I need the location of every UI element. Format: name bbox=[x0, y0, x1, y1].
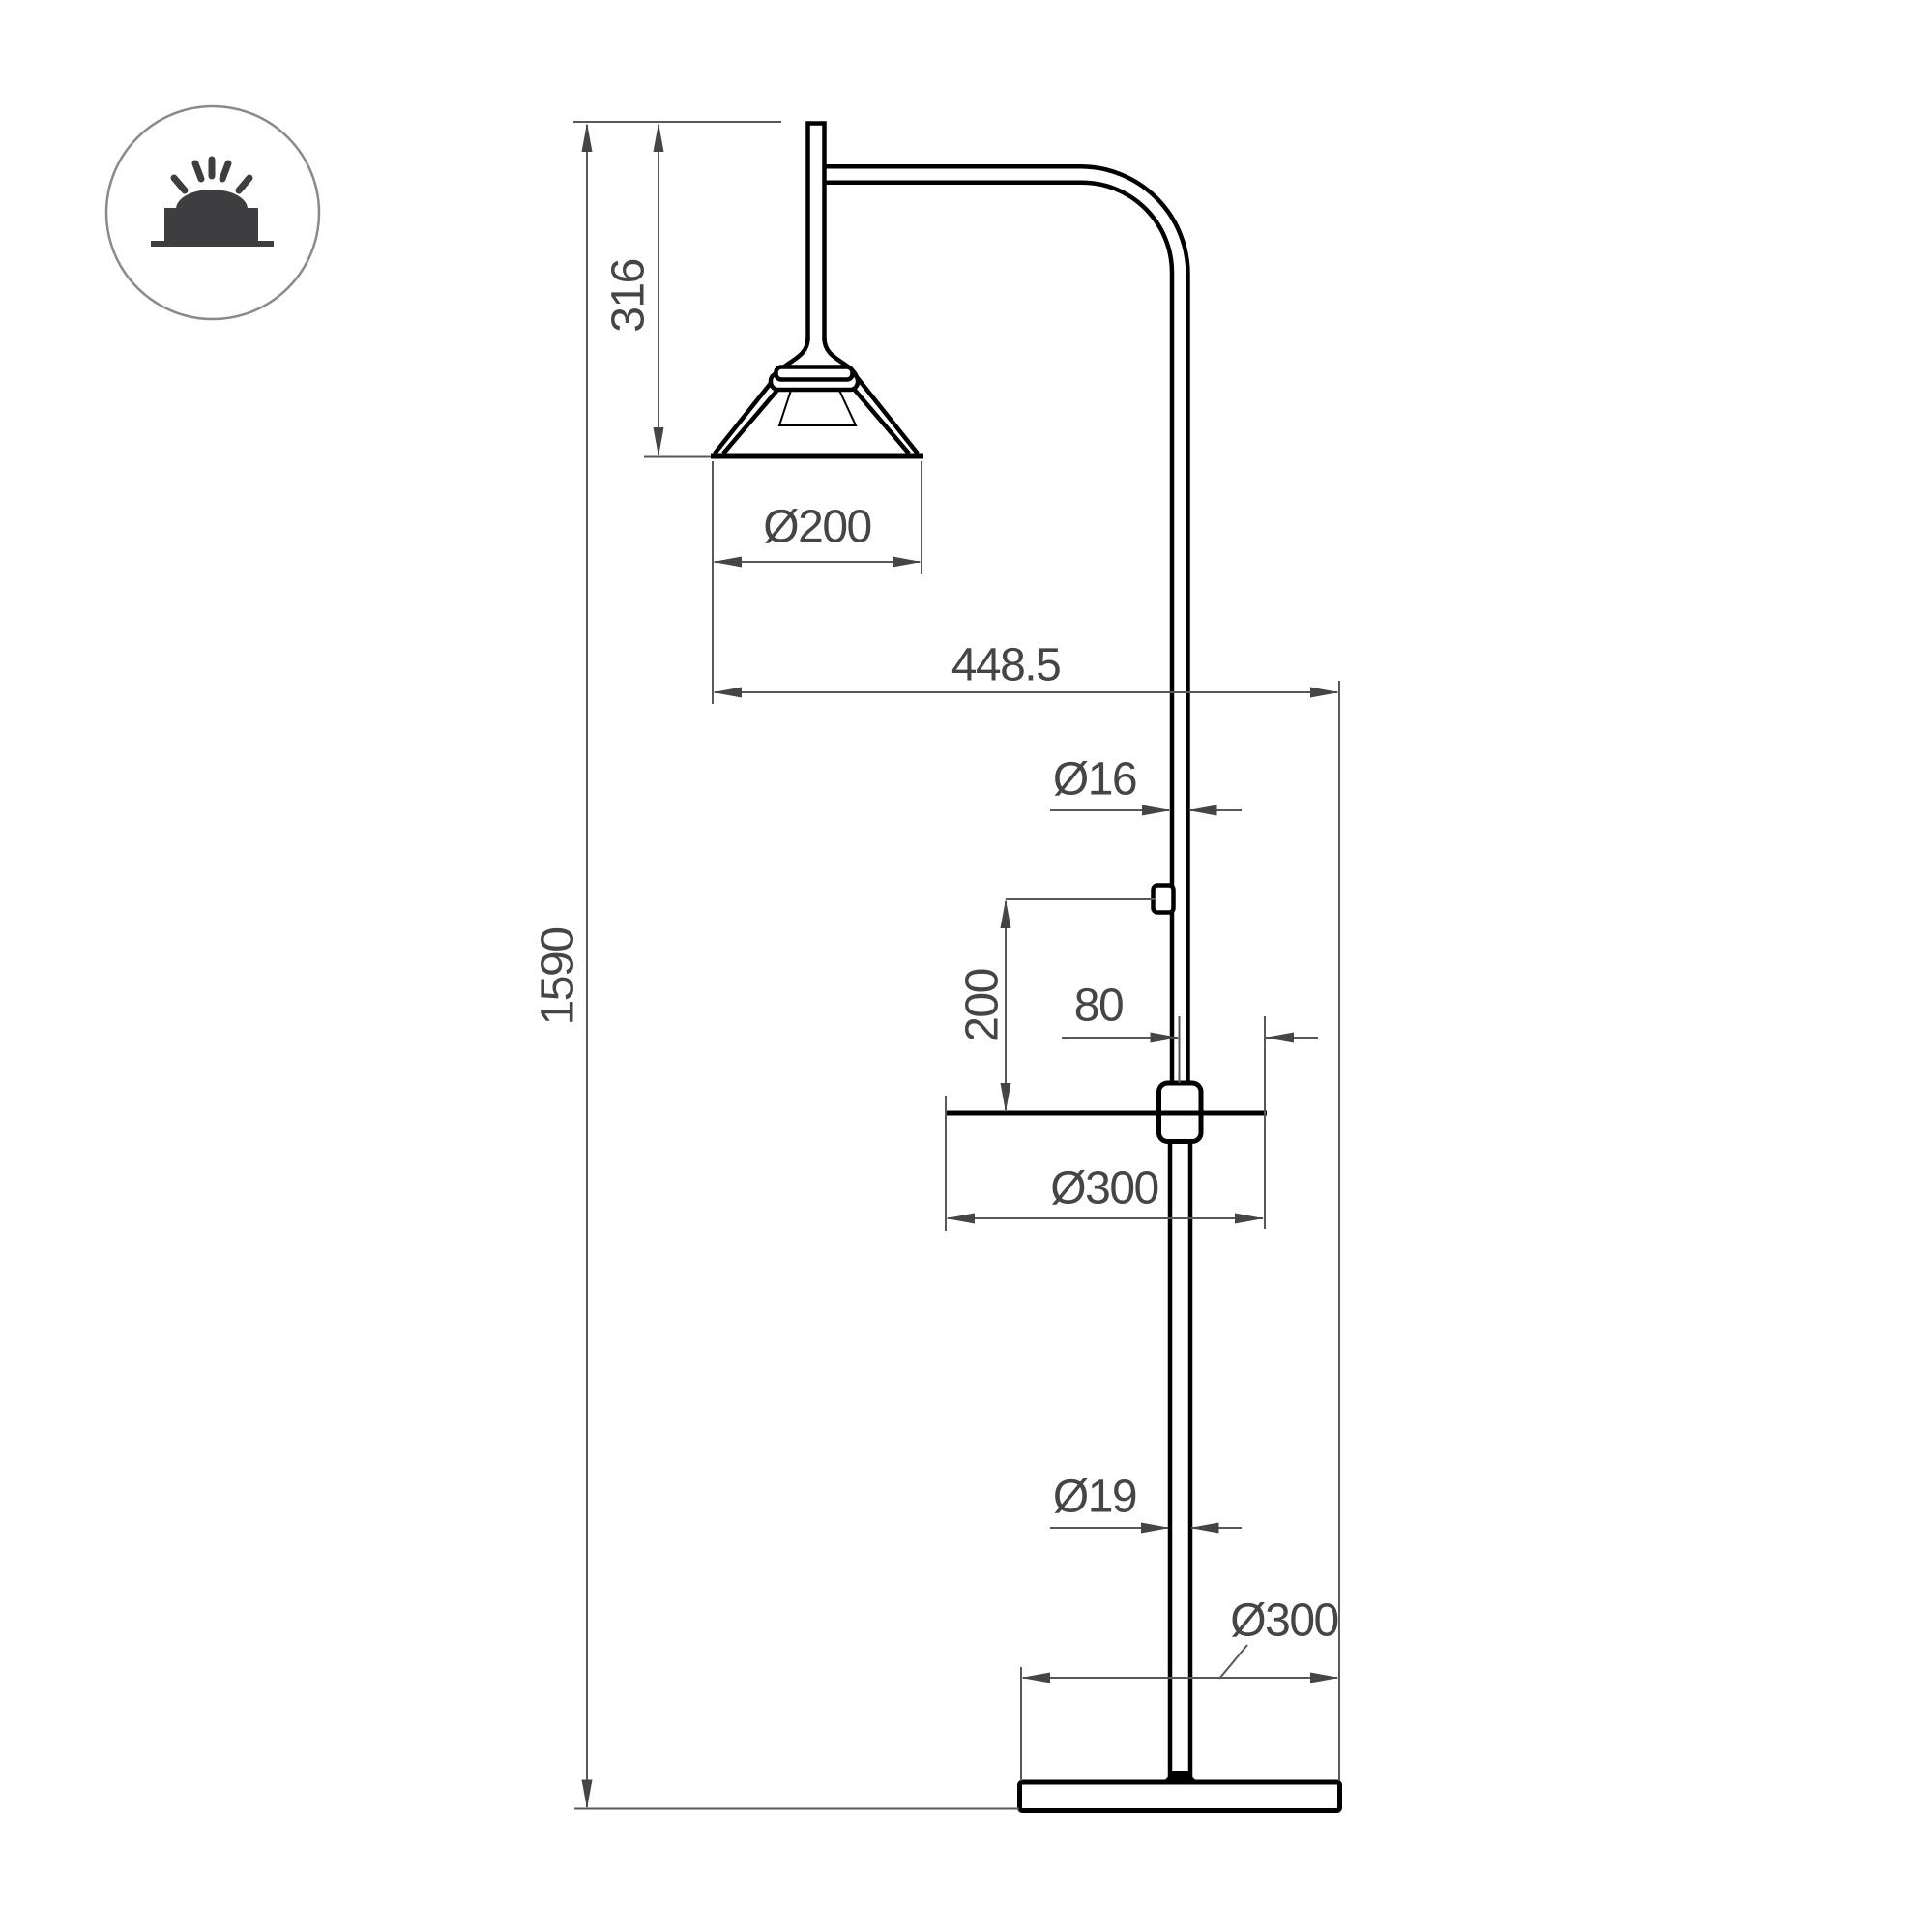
lamp-base-icon bbox=[151, 241, 274, 247]
dim-total-height: 1590 bbox=[533, 123, 593, 1809]
base-diameter-leader bbox=[1219, 1645, 1247, 1679]
drawing-canvas: 1590 316 Ø200 448.5 Ø16 200 bbox=[0, 0, 1932, 1932]
dim-label-table-diameter: Ø300 bbox=[1050, 1163, 1157, 1215]
shade-right-inner-edge bbox=[847, 381, 909, 454]
lamp-stem bbox=[808, 124, 825, 341]
dim-head-drop: 316 bbox=[603, 123, 664, 456]
extension-lines bbox=[573, 122, 1339, 1809]
dim-label-total-height: 1590 bbox=[533, 928, 584, 1026]
dim-label-lower-pole-diameter: Ø19 bbox=[1053, 1472, 1136, 1523]
led-module bbox=[776, 367, 853, 380]
dim-label-upper-pole-diameter: Ø16 bbox=[1053, 754, 1136, 805]
dimension-drawing: 1590 316 Ø200 448.5 Ø16 200 bbox=[0, 0, 1932, 1932]
dim-shade-diameter: Ø200 bbox=[713, 502, 922, 568]
shade-left-inner-edge bbox=[723, 381, 785, 454]
dim-label-switch-above-table: 200 bbox=[957, 969, 1009, 1042]
dim-arm-reach: 448.5 bbox=[713, 640, 1339, 698]
lamp-outline bbox=[711, 124, 1340, 1811]
dim-lower-pole-diameter: Ø19 bbox=[1050, 1472, 1242, 1534]
arm-inner-edge bbox=[824, 183, 1172, 1088]
product-type-icon bbox=[106, 106, 319, 319]
dim-label-head-drop: 316 bbox=[603, 259, 655, 333]
lamp-body-icon bbox=[164, 208, 258, 243]
dim-switch-above-table: 200 bbox=[957, 899, 1011, 1112]
inner-reflector bbox=[779, 391, 856, 426]
dim-base-diameter: Ø300 bbox=[1021, 1595, 1339, 1683]
dim-label-pole-to-table-edge: 80 bbox=[1074, 981, 1123, 1032]
dim-upper-pole-diameter: Ø16 bbox=[1050, 754, 1242, 816]
base-plate bbox=[1020, 1782, 1340, 1811]
dim-label-base-diameter: Ø300 bbox=[1230, 1595, 1337, 1647]
dim-label-arm-reach: 448.5 bbox=[951, 640, 1061, 691]
dim-table-diameter: Ø300 bbox=[946, 1163, 1264, 1224]
dim-label-shade-diameter: Ø200 bbox=[763, 502, 870, 553]
